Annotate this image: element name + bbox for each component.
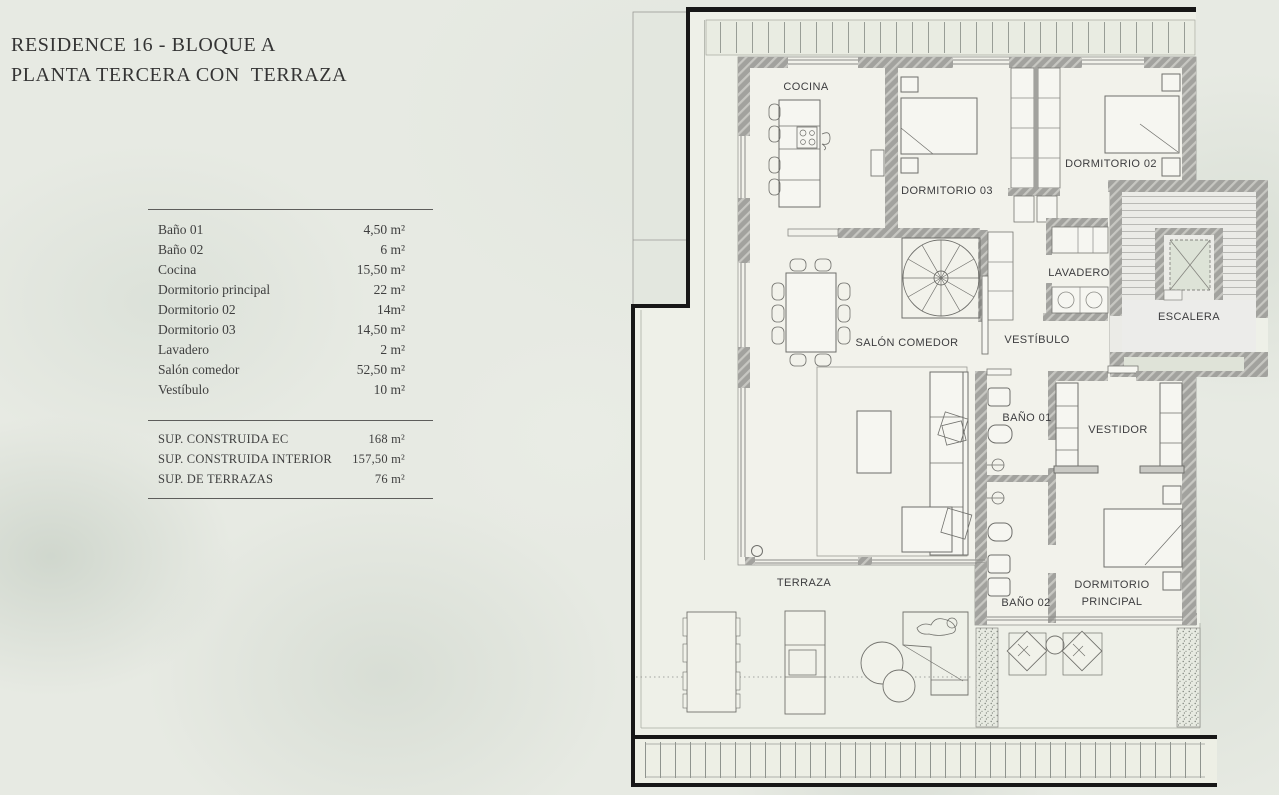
side-table — [1046, 636, 1064, 654]
room-label-bano01: BAÑO 01 — [1002, 411, 1051, 424]
room-label-salon-comedor: SALÓN COMEDOR — [856, 336, 959, 349]
room-label-cocina: COCINA — [783, 81, 828, 93]
room-label-terraza: TERRAZA — [777, 577, 831, 589]
top-railing — [706, 20, 1195, 55]
room-label-escalera: ESCALERA — [1158, 311, 1220, 323]
room-label-dormitorio03: DORMITORIO 03 — [901, 185, 993, 197]
planter — [976, 628, 998, 727]
outdoor-bbq — [785, 611, 825, 714]
outdoor-table — [683, 612, 740, 712]
room-label-dorm-principal-2: PRINCIPAL — [1082, 596, 1143, 608]
room-label-dormitorio02: DORMITORIO 02 — [1065, 158, 1157, 170]
neighbour-terrace-strip — [633, 12, 688, 307]
room-label-dorm-principal-1: DORMITORIO — [1074, 579, 1149, 591]
bottom-railing — [633, 735, 1217, 787]
planter — [1177, 628, 1200, 727]
room-label-vestidor: VESTIDOR — [1088, 424, 1147, 436]
floor-plan: COCINA DORMITORIO 03 DORMITORIO 02 LAVAD… — [0, 0, 1279, 795]
floor-plan-sheet: RESIDENCE 16 - BLOQUE A PLANTA TERCERA C… — [0, 0, 1279, 795]
room-label-lavadero: LAVADERO — [1048, 267, 1110, 279]
round-table-small — [883, 670, 915, 702]
stairwell-escalera — [1108, 180, 1268, 377]
room-label-bano02: BAÑO 02 — [1001, 596, 1050, 609]
room-label-vestibulo: VESTÍBULO — [1004, 333, 1069, 346]
